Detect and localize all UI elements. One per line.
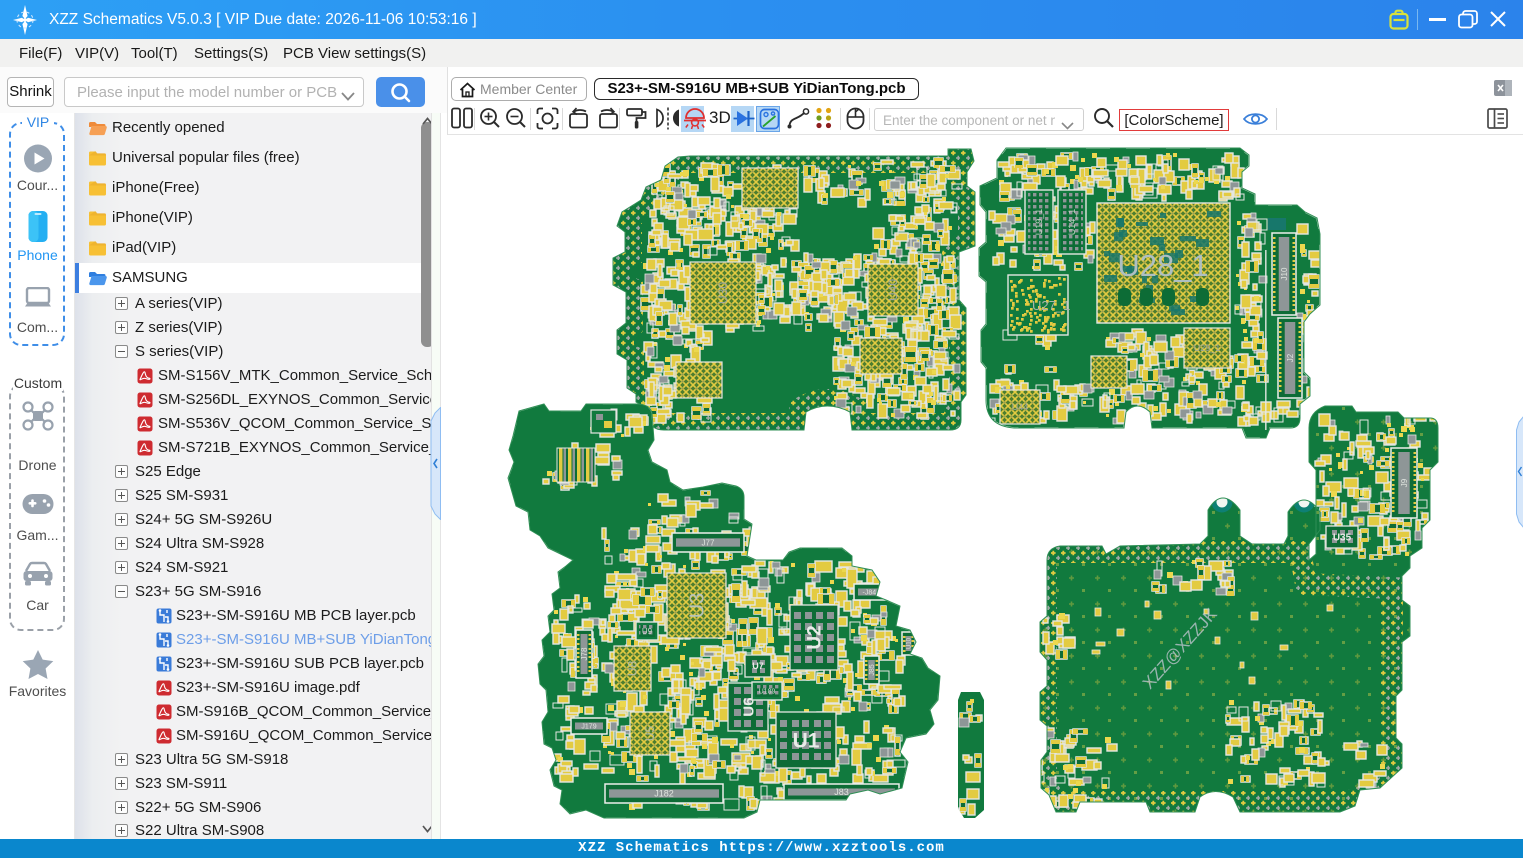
svg-text:U40: U40 [886, 279, 900, 301]
svg-text:J9: J9 [1400, 478, 1409, 487]
svg-text:U2: U2 [805, 625, 826, 649]
svg-text:U44: U44 [1012, 402, 1029, 412]
svg-text:J2: J2 [1286, 353, 1295, 362]
svg-text:J179: J179 [581, 723, 596, 730]
svg-text:J182: J182 [654, 789, 674, 799]
svg-text:U29_1: U29_1 [1194, 343, 1221, 353]
svg-text:J85: J85 [869, 664, 876, 675]
svg-text:U10: U10 [907, 637, 913, 649]
svg-text:U28_1: U28_1 [1117, 248, 1208, 283]
svg-text:U8: U8 [626, 661, 640, 677]
svg-text:U3: U3 [687, 593, 709, 619]
svg-text:U30: U30 [716, 282, 730, 304]
svg-text:J77: J77 [702, 538, 715, 547]
svg-text:U14_1: U14_1 [1067, 209, 1077, 236]
svg-text:U5: U5 [643, 726, 657, 742]
svg-text:U19_1: U19_1 [1034, 209, 1044, 236]
svg-text:J186: J186 [923, 768, 930, 783]
svg-text:U1: U1 [793, 729, 820, 752]
svg-text:U189: U189 [759, 688, 776, 695]
svg-text:J83: J83 [834, 787, 849, 797]
svg-text:U9: U9 [642, 627, 653, 636]
svg-text:J10: J10 [1280, 267, 1289, 280]
svg-text:J78: J78 [580, 647, 589, 660]
svg-text:U35: U35 [1333, 533, 1352, 544]
svg-text:U7: U7 [752, 661, 764, 671]
svg-text:U27_1: U27_1 [1032, 298, 1070, 313]
